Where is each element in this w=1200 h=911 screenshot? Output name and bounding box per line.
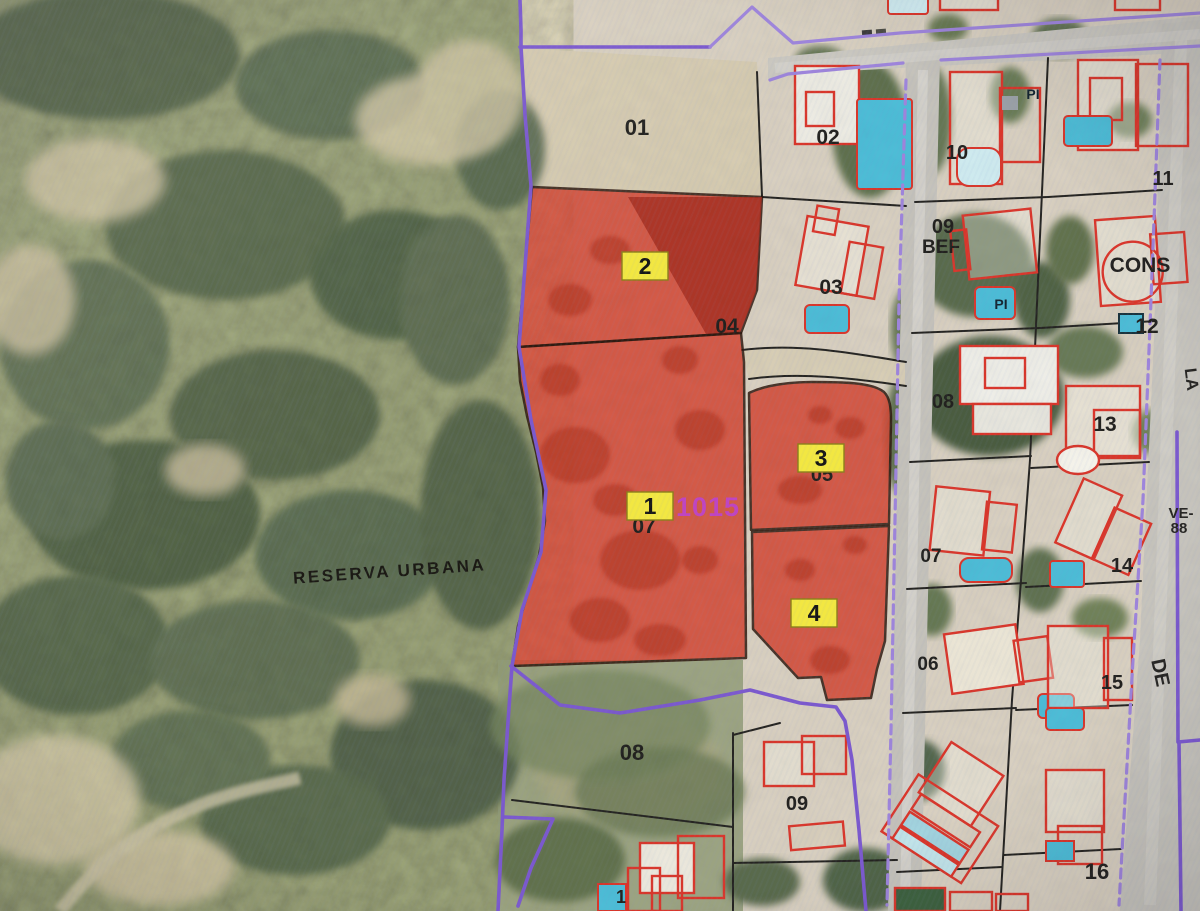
road-name-fragment: LA	[1181, 367, 1200, 392]
parcel-number-15: 15	[1101, 672, 1123, 694]
parcel-badge-2[interactable]: 2	[622, 252, 668, 280]
parcel-number-CONS: CONS	[1110, 254, 1171, 277]
svg-text:2: 2	[639, 253, 652, 279]
parcel-number-02: 02	[816, 126, 839, 149]
parcel-number-1: 1	[616, 887, 626, 907]
parcel-number-08: 08	[932, 391, 954, 413]
pool-label: PI	[1026, 86, 1039, 102]
svg-text:4: 4	[808, 600, 821, 626]
parcel-number-16: 16	[1085, 859, 1109, 884]
parcel-number-04: 04	[715, 315, 739, 338]
photo-grain	[0, 0, 1200, 911]
parcel-number-13: 13	[1093, 413, 1116, 436]
parcel-number-12: 12	[1135, 315, 1158, 338]
parcel-number-03: 03	[819, 276, 842, 299]
parcel-number-07: 07	[920, 546, 941, 567]
road-name-fragment: 88	[1171, 520, 1188, 537]
svg-text:3: 3	[815, 445, 828, 471]
parcel-number-01: 01	[625, 115, 649, 140]
parcel-badge-1[interactable]: 1	[627, 492, 673, 520]
pool-label: PI	[994, 296, 1007, 312]
aerial-map[interactable]: 010203040705101109BEFCONS120813071406150…	[0, 0, 1200, 911]
parcel-number-09: 09	[786, 793, 808, 815]
map-viewport[interactable]: 010203040705101109BEFCONS120813071406150…	[0, 0, 1200, 911]
parcel-badge-4[interactable]: 4	[791, 599, 837, 627]
parcel-number-BEF: BEF	[922, 237, 960, 258]
parcel-number-09: 09	[932, 216, 954, 238]
parcel-number-10: 10	[946, 142, 968, 164]
parcel-badge-3[interactable]: 3	[798, 444, 844, 472]
parcel-number-06: 06	[917, 654, 938, 675]
parcel-number-14: 14	[1111, 555, 1134, 577]
parcel-number-11: 11	[1152, 168, 1173, 190]
parcel-number-08: 08	[620, 740, 644, 765]
svg-text:1: 1	[644, 493, 657, 519]
